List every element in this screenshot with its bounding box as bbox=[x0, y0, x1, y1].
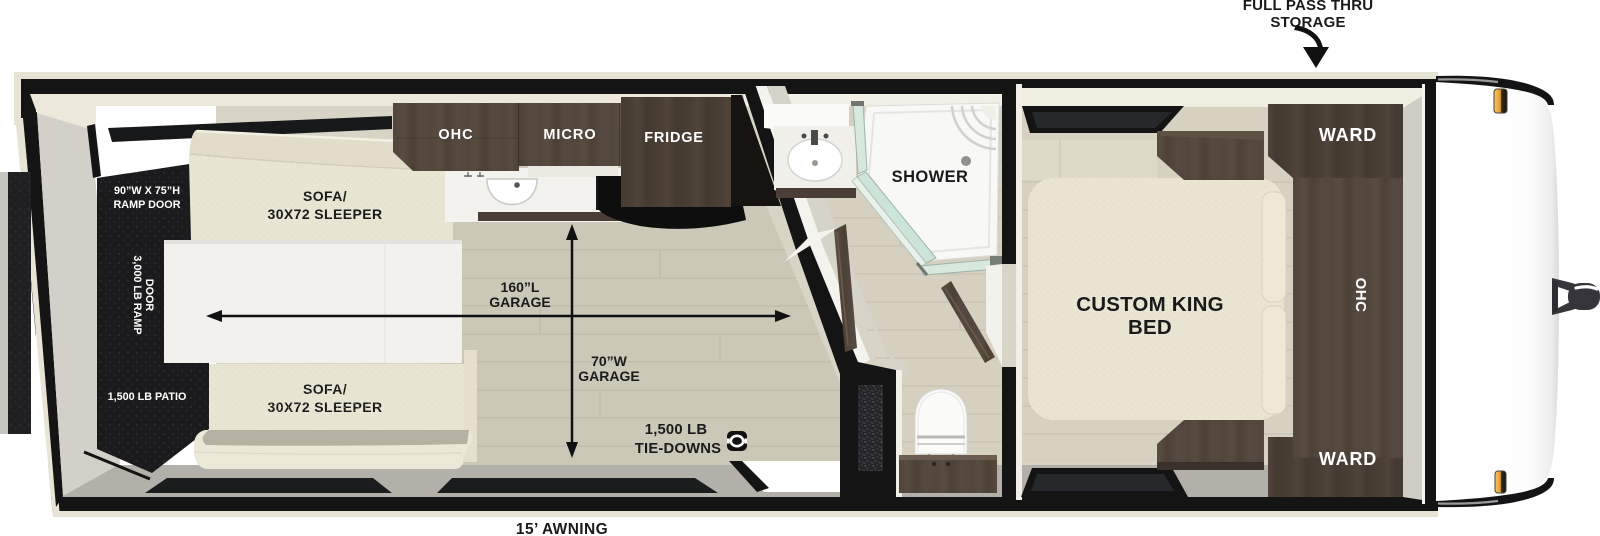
svg-text:WARD: WARD bbox=[1319, 449, 1377, 469]
svg-text:1,500 LB PATIO: 1,500 LB PATIO bbox=[108, 391, 187, 403]
svg-text:RAMP DOOR: RAMP DOOR bbox=[114, 199, 181, 211]
svg-text:DOOR: DOOR bbox=[143, 279, 155, 312]
svg-text:OHC: OHC bbox=[1352, 278, 1369, 313]
svg-text:CUSTOM KING: CUSTOM KING bbox=[1076, 293, 1224, 316]
svg-text:OHC: OHC bbox=[438, 127, 473, 143]
svg-text:BED: BED bbox=[1128, 316, 1172, 339]
svg-text:WARD: WARD bbox=[1319, 125, 1377, 145]
svg-text:3,000 LB RAMP: 3,000 LB RAMP bbox=[131, 255, 143, 334]
svg-text:SOFA/: SOFA/ bbox=[303, 188, 347, 204]
svg-text:FULL PASS THRU: FULL PASS THRU bbox=[1243, 0, 1374, 14]
svg-text:70”W: 70”W bbox=[591, 353, 628, 369]
svg-text:STORAGE: STORAGE bbox=[1270, 14, 1345, 31]
svg-text:SHOWER: SHOWER bbox=[892, 168, 969, 186]
svg-text:MICRO: MICRO bbox=[543, 127, 596, 143]
svg-text:30X72 SLEEPER: 30X72 SLEEPER bbox=[268, 206, 383, 222]
svg-text:FRIDGE: FRIDGE bbox=[644, 130, 704, 146]
svg-text:160”L: 160”L bbox=[501, 279, 540, 295]
svg-text:90”W X 75”H: 90”W X 75”H bbox=[114, 185, 180, 197]
svg-text:1,500 LB: 1,500 LB bbox=[645, 422, 708, 438]
svg-text:GARAGE: GARAGE bbox=[489, 294, 550, 310]
svg-text:GARAGE: GARAGE bbox=[578, 368, 639, 384]
svg-text:15’ AWNING: 15’ AWNING bbox=[516, 521, 608, 536]
svg-text:TIE-DOWNS: TIE-DOWNS bbox=[635, 441, 721, 457]
